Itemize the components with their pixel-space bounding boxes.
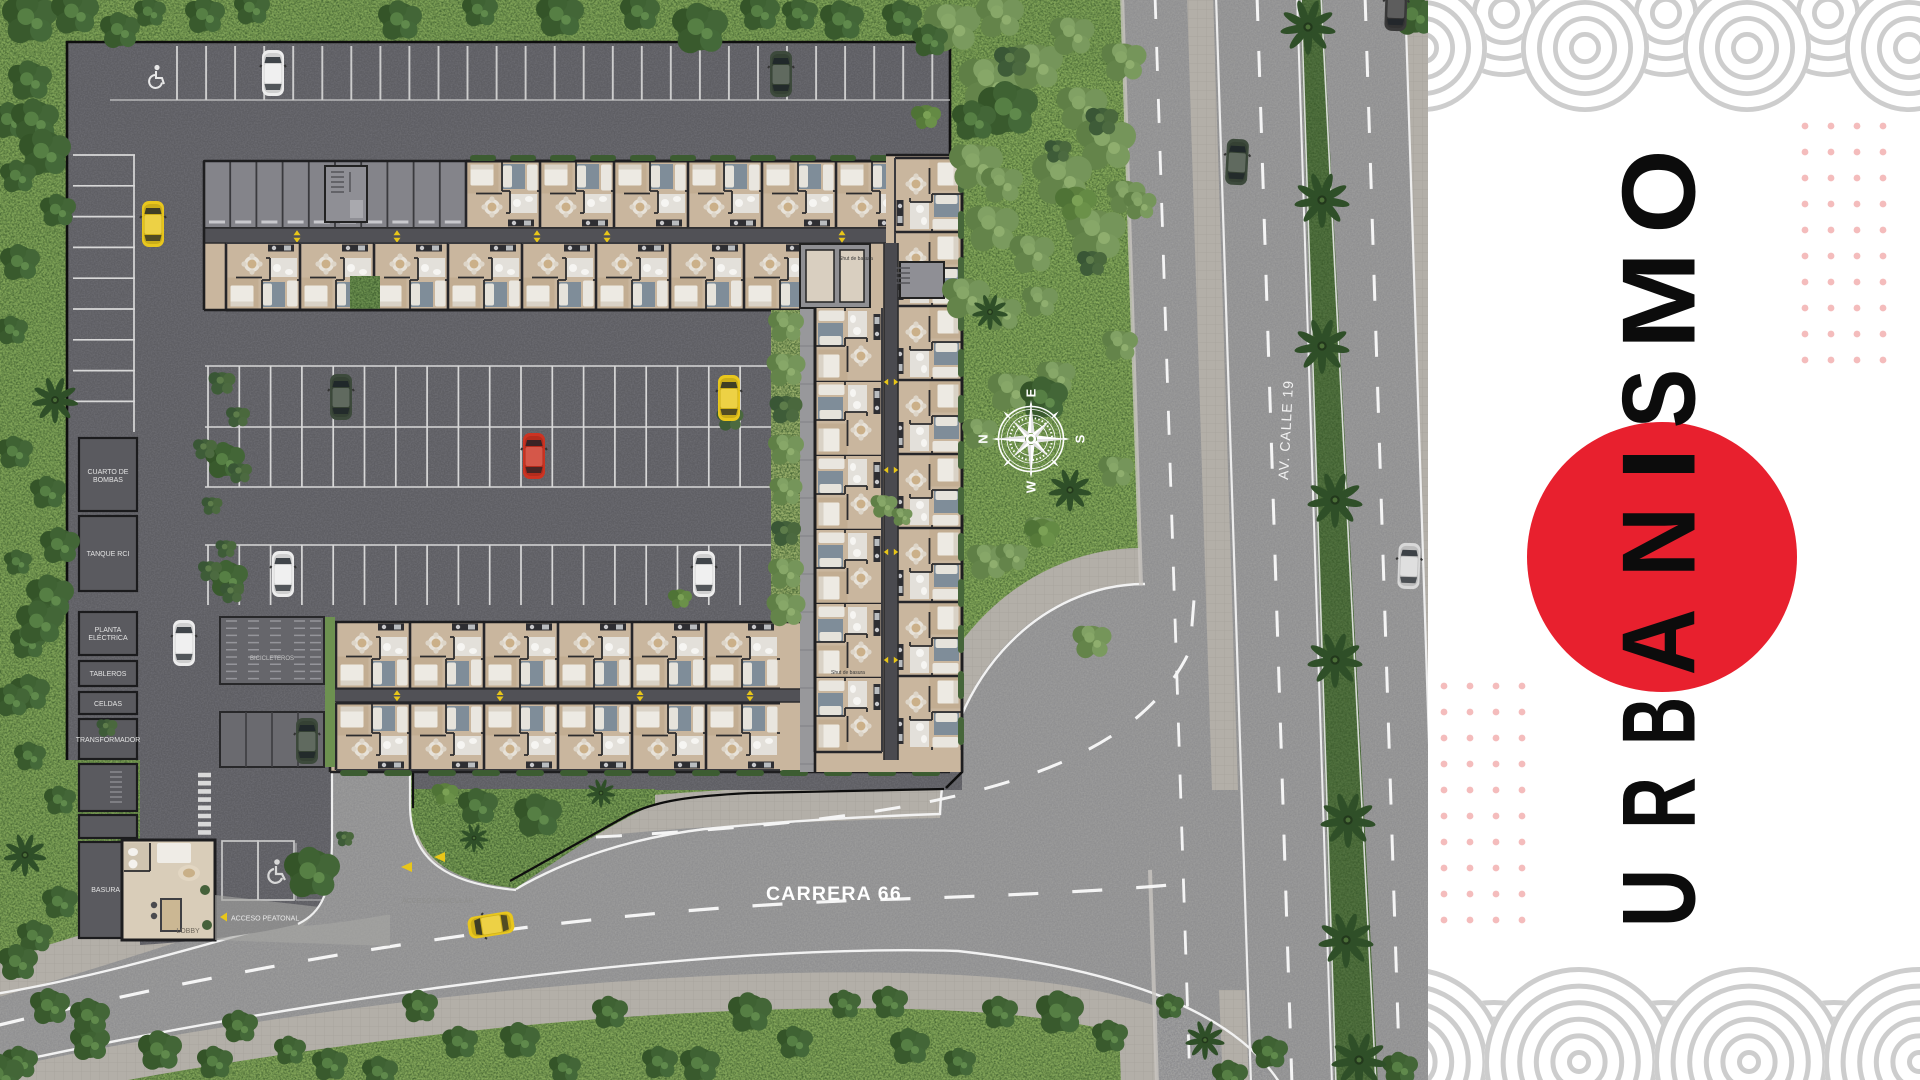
svg-text:TABLEROS: TABLEROS bbox=[90, 671, 127, 678]
svg-text:LOBBY: LOBBY bbox=[176, 928, 200, 935]
svg-text:U: U bbox=[1601, 869, 1717, 928]
svg-text:R: R bbox=[1600, 777, 1716, 829]
svg-text:Shut de basura: Shut de basura bbox=[831, 670, 865, 676]
svg-text:N: N bbox=[976, 434, 991, 443]
svg-text:S: S bbox=[1073, 434, 1088, 443]
svg-text:BICICLETEROS: BICICLETEROS bbox=[250, 656, 294, 662]
svg-text:CELDAS: CELDAS bbox=[94, 701, 122, 708]
svg-text:ACCESO VEHICULAR: ACCESO VEHICULAR bbox=[402, 898, 474, 905]
svg-text:CARRERA 66: CARRERA 66 bbox=[766, 883, 902, 905]
svg-text:BOMBAS: BOMBAS bbox=[93, 477, 123, 484]
svg-text:B: B bbox=[1600, 697, 1717, 745]
svg-text:W: W bbox=[1024, 480, 1039, 493]
svg-text:I: I bbox=[1601, 447, 1717, 482]
svg-text:TANQUE RCI: TANQUE RCI bbox=[87, 551, 130, 558]
svg-text:BASURAS: BASURAS bbox=[91, 887, 125, 894]
svg-text:Shut de basura: Shut de basura bbox=[839, 256, 873, 262]
svg-text:N: N bbox=[1602, 507, 1717, 578]
svg-text:A: A bbox=[1600, 609, 1716, 676]
svg-text:ELÉCTRICA: ELÉCTRICA bbox=[88, 633, 128, 642]
svg-text:S: S bbox=[1600, 369, 1717, 429]
svg-text:M: M bbox=[1601, 252, 1717, 350]
svg-text:E: E bbox=[1024, 388, 1039, 397]
svg-text:PLANTA: PLANTA bbox=[95, 627, 122, 634]
svg-text:ACCESO PEATONAL: ACCESO PEATONAL bbox=[231, 916, 299, 923]
svg-text:TRANSFORMADOR: TRANSFORMADOR bbox=[76, 737, 141, 744]
svg-text:CUARTO DE: CUARTO DE bbox=[88, 469, 129, 476]
svg-text:O: O bbox=[1601, 149, 1717, 233]
